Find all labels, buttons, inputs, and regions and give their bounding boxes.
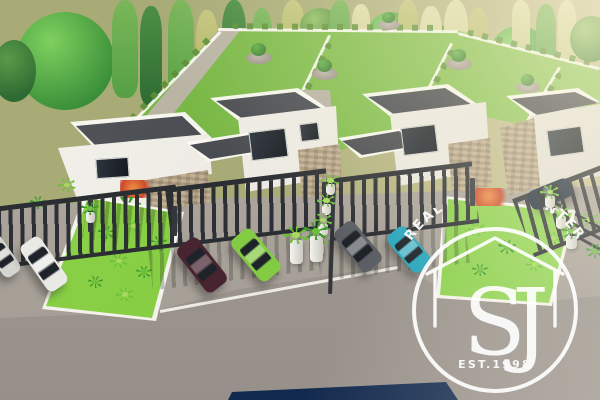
- palm-plant: [540, 185, 560, 199]
- cypress-tree: [112, 0, 138, 98]
- house-2-window-large: [248, 128, 288, 161]
- rock-planter: [246, 52, 272, 64]
- aerial-render: REAL ESTATE CENTER SJ EST.1998: [0, 0, 600, 400]
- house-2-window-small: [299, 122, 320, 142]
- palm-plant: [303, 222, 329, 240]
- red-flower-plant: [474, 188, 510, 206]
- palm-plant: [116, 288, 134, 301]
- shrub-ball: [382, 12, 395, 23]
- house-1-window: [95, 157, 129, 179]
- watermark-logo: REAL ESTATE CENTER SJ EST.1998: [401, 208, 593, 400]
- planter-pot: [310, 236, 323, 262]
- house-3-window-large: [400, 124, 438, 156]
- shrub-ball: [521, 74, 534, 86]
- palm-plant: [81, 202, 99, 215]
- palm-plant: [317, 194, 336, 207]
- palm-plant: [321, 174, 340, 187]
- palm-plant: [88, 276, 103, 288]
- shrub-ball: [451, 49, 466, 62]
- rock-planter: [446, 58, 472, 70]
- rock-planter: [312, 68, 338, 80]
- pergola-post: [470, 178, 475, 206]
- rock-planter: [378, 20, 400, 30]
- shrub-ball: [251, 43, 266, 56]
- palm-plant: [110, 254, 128, 268]
- rock-planter: [516, 82, 540, 93]
- logo-established: EST.1998: [458, 358, 532, 371]
- house-4-window-large: [546, 126, 584, 158]
- palm-plant: [58, 178, 76, 192]
- planter-pot: [86, 212, 95, 223]
- shrub-ball: [317, 59, 332, 72]
- pergola-post: [172, 206, 177, 236]
- planter-pot: [290, 240, 303, 264]
